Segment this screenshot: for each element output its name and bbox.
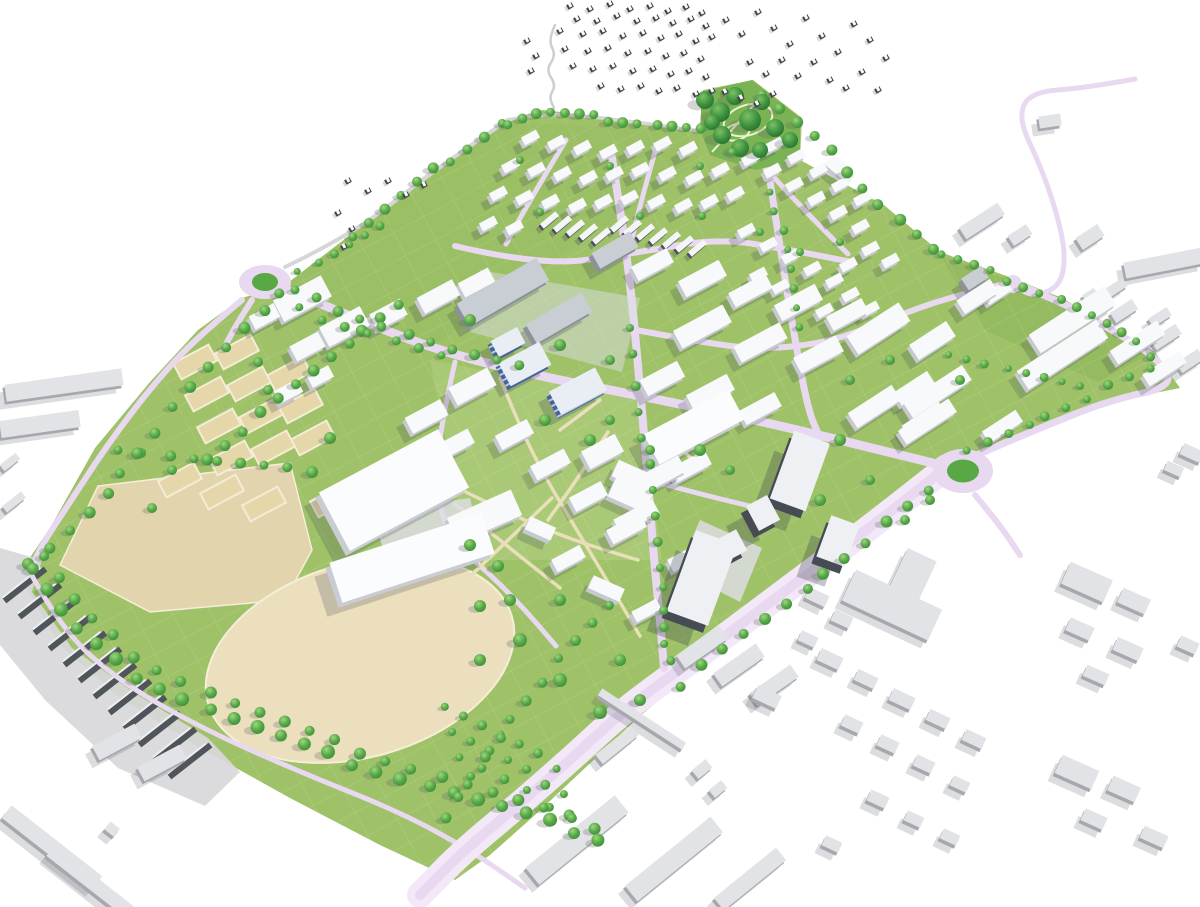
tree <box>1102 319 1111 328</box>
tree <box>414 343 424 353</box>
tree <box>54 572 65 583</box>
tree <box>517 114 527 124</box>
tree <box>477 764 486 773</box>
road <box>1013 79 1135 294</box>
tree <box>553 673 567 687</box>
tree <box>554 654 563 663</box>
tree <box>305 726 315 736</box>
tree <box>175 692 189 706</box>
tree <box>453 792 463 802</box>
tree <box>90 637 103 650</box>
tree <box>817 568 829 580</box>
tree <box>376 322 386 332</box>
tree <box>515 739 524 748</box>
tree <box>426 337 435 346</box>
tree <box>219 440 230 451</box>
tree <box>251 720 265 734</box>
tree <box>955 375 965 385</box>
tree <box>40 583 53 596</box>
dirt-track <box>549 25 556 108</box>
tree <box>152 665 162 675</box>
tree <box>937 250 945 258</box>
tree <box>591 834 604 847</box>
tree <box>503 120 512 129</box>
tree <box>514 360 524 370</box>
tree <box>1004 429 1013 438</box>
tree <box>446 157 455 166</box>
tree <box>713 126 731 144</box>
tree <box>355 315 364 324</box>
tree <box>782 132 798 148</box>
tree <box>540 780 550 790</box>
tree <box>1059 378 1066 385</box>
tree <box>894 214 906 226</box>
tree <box>659 622 669 632</box>
tree <box>645 445 655 455</box>
tree <box>131 673 143 685</box>
tree <box>803 584 813 594</box>
tree <box>1083 395 1091 403</box>
tree <box>238 322 250 334</box>
tree <box>254 707 265 718</box>
tree <box>793 304 800 311</box>
tree <box>27 563 39 575</box>
tree <box>1040 411 1050 421</box>
tree <box>1026 421 1034 429</box>
tree <box>789 284 798 293</box>
tree <box>516 156 524 164</box>
tree <box>696 124 706 134</box>
tree <box>375 312 386 323</box>
tree <box>363 330 371 338</box>
tree <box>614 654 626 666</box>
tree <box>536 208 544 216</box>
tree <box>521 695 532 706</box>
tree <box>321 745 335 759</box>
tree <box>437 351 445 359</box>
tree <box>1002 277 1011 286</box>
tree <box>1147 365 1155 373</box>
tree <box>466 737 475 746</box>
tree <box>474 600 486 612</box>
tree <box>1018 282 1028 292</box>
tree <box>298 737 311 750</box>
tree <box>1005 365 1012 372</box>
tree <box>779 226 788 235</box>
tree <box>865 475 875 485</box>
tree <box>570 635 581 646</box>
tree <box>212 456 222 466</box>
tree <box>496 800 508 812</box>
tree <box>405 764 416 775</box>
tree <box>295 303 303 311</box>
tree <box>65 526 75 536</box>
tree <box>554 339 566 351</box>
tree <box>447 345 457 355</box>
tree <box>147 503 157 513</box>
tree <box>380 756 390 766</box>
tree <box>436 771 448 783</box>
tree <box>522 765 531 774</box>
tree <box>666 121 677 132</box>
tree <box>695 659 707 671</box>
tree <box>924 486 934 496</box>
tree <box>513 633 527 647</box>
tree <box>274 288 284 298</box>
tree <box>469 349 480 360</box>
tree <box>872 199 883 210</box>
tree <box>836 238 844 246</box>
tree <box>71 622 83 634</box>
tree <box>464 314 476 326</box>
tree <box>605 601 614 610</box>
tree <box>739 109 761 131</box>
tree <box>113 446 122 455</box>
tree <box>696 162 704 170</box>
tree <box>279 716 291 728</box>
tree <box>1076 382 1084 390</box>
tree <box>567 813 577 823</box>
tree <box>537 678 547 688</box>
tree <box>165 450 176 461</box>
tree <box>1146 352 1155 361</box>
tree <box>589 110 598 119</box>
tree <box>506 715 515 724</box>
tree <box>912 230 922 240</box>
tree <box>539 414 551 426</box>
tree <box>766 119 784 137</box>
tree <box>587 618 597 628</box>
tree <box>428 162 439 173</box>
tree <box>312 293 322 303</box>
tree <box>282 462 292 472</box>
tree <box>987 266 995 274</box>
tree <box>774 103 785 114</box>
tree <box>448 728 456 736</box>
tree <box>634 694 646 706</box>
tree <box>354 748 366 760</box>
tree <box>656 564 664 572</box>
tree <box>698 212 706 220</box>
tree <box>492 355 501 364</box>
tree <box>881 516 893 528</box>
tree <box>523 786 531 794</box>
tree <box>531 108 542 119</box>
tree <box>796 248 804 256</box>
tree <box>980 359 989 368</box>
tree <box>574 108 585 119</box>
tree <box>273 393 284 404</box>
tree <box>392 336 401 345</box>
tree <box>593 705 607 719</box>
tree <box>1072 302 1082 312</box>
tree <box>739 629 749 639</box>
tree <box>463 780 473 790</box>
tree <box>512 794 524 806</box>
tree <box>205 687 217 699</box>
tree <box>364 218 374 228</box>
tree <box>221 342 231 352</box>
tree <box>631 381 641 391</box>
tree <box>462 144 472 154</box>
tree <box>254 406 266 418</box>
tree <box>471 792 485 806</box>
tree <box>845 375 855 385</box>
tree <box>839 553 850 564</box>
tree <box>660 640 668 648</box>
tree <box>291 285 300 294</box>
tree <box>487 787 498 798</box>
tree <box>149 428 160 439</box>
tree <box>649 486 657 494</box>
tree <box>520 806 533 819</box>
tree <box>841 166 853 178</box>
tree <box>784 246 791 253</box>
tree <box>1125 372 1134 381</box>
tree <box>1132 337 1140 345</box>
tree <box>318 316 327 325</box>
tree <box>253 357 263 367</box>
tree <box>168 402 178 412</box>
tree <box>259 461 268 470</box>
tree <box>925 495 935 505</box>
tree <box>128 651 140 663</box>
tree <box>533 748 543 758</box>
tree <box>560 790 568 798</box>
tree <box>900 515 910 525</box>
tree <box>791 116 803 128</box>
tree <box>153 682 166 695</box>
tree <box>235 458 246 469</box>
tree <box>464 539 476 551</box>
tree <box>340 322 350 332</box>
tree <box>834 434 846 446</box>
tree <box>560 108 570 118</box>
tree <box>902 501 913 512</box>
tree <box>175 676 186 687</box>
tree <box>184 381 196 393</box>
tree <box>306 466 318 478</box>
tree <box>717 643 728 654</box>
tree <box>324 432 336 444</box>
tree <box>393 772 407 786</box>
tree <box>928 244 939 255</box>
tree <box>953 255 962 264</box>
tree <box>361 231 369 239</box>
tree <box>728 148 736 156</box>
tree <box>441 812 452 823</box>
tree <box>756 228 764 236</box>
tree <box>54 603 68 617</box>
tree <box>230 698 240 708</box>
tree <box>480 751 491 762</box>
tree <box>659 606 668 615</box>
tree <box>814 494 826 506</box>
tree <box>504 756 512 764</box>
tree <box>238 427 248 437</box>
tree <box>860 538 870 548</box>
tree <box>109 652 123 666</box>
tree <box>589 823 601 835</box>
tree <box>294 268 301 275</box>
tree <box>653 120 663 130</box>
tree <box>329 734 340 745</box>
tree <box>752 142 768 158</box>
tree <box>963 447 971 455</box>
tree <box>1061 403 1070 412</box>
tree <box>167 465 177 475</box>
tree <box>1103 380 1113 390</box>
tree <box>1035 289 1043 297</box>
tree <box>131 447 143 459</box>
tree <box>345 339 355 349</box>
masterplan-canvas <box>0 0 1200 907</box>
tree <box>682 123 691 132</box>
tree <box>394 300 404 310</box>
tree <box>826 144 837 155</box>
tree <box>326 351 337 362</box>
tree <box>441 703 449 711</box>
tree <box>653 537 663 547</box>
tree <box>759 613 771 625</box>
tree <box>228 712 241 725</box>
tree <box>492 560 504 572</box>
tree <box>795 323 803 331</box>
tree <box>636 212 644 220</box>
tree <box>103 488 114 499</box>
tree <box>315 259 323 267</box>
tree <box>857 184 867 194</box>
tree <box>603 117 613 127</box>
tree <box>69 593 81 605</box>
tree <box>459 712 468 721</box>
tree <box>659 583 667 591</box>
tree <box>605 415 615 425</box>
tree <box>969 260 979 270</box>
tree <box>205 703 217 715</box>
dirt-track <box>549 25 556 108</box>
tree <box>275 729 287 741</box>
tree <box>637 433 646 442</box>
tree <box>346 759 358 771</box>
tree <box>479 132 490 143</box>
tree <box>333 306 344 317</box>
tree <box>962 355 970 363</box>
tree <box>651 511 660 520</box>
tree <box>568 827 580 839</box>
tree <box>885 355 895 365</box>
tree <box>499 774 509 784</box>
tree <box>645 459 655 469</box>
road <box>975 495 1020 555</box>
tree <box>770 207 778 215</box>
tree <box>1088 311 1096 319</box>
tree <box>543 813 557 827</box>
tree <box>84 506 96 518</box>
tree <box>87 613 97 623</box>
tree <box>1057 295 1066 304</box>
tree <box>376 221 385 230</box>
tree <box>379 204 390 215</box>
tree <box>39 551 49 561</box>
tree <box>766 189 773 196</box>
masterplan-rendering <box>0 0 1200 907</box>
tree <box>781 598 792 609</box>
tree <box>632 119 641 128</box>
tree <box>628 349 637 358</box>
tree <box>694 444 706 456</box>
tree <box>626 324 634 332</box>
tree <box>263 385 273 395</box>
tree <box>504 594 516 606</box>
tree <box>404 329 415 340</box>
tree <box>605 355 615 365</box>
tree <box>606 162 614 170</box>
tree <box>725 465 735 475</box>
tree <box>369 766 382 779</box>
tree <box>474 654 486 666</box>
tree <box>477 720 487 730</box>
tree <box>787 265 795 273</box>
tree <box>539 803 549 813</box>
tree <box>1117 327 1127 337</box>
tree <box>983 437 993 447</box>
tree <box>330 249 339 258</box>
tree <box>1040 373 1049 382</box>
tree <box>810 131 820 141</box>
tree <box>115 468 125 478</box>
tree <box>635 408 643 416</box>
tree <box>617 117 628 128</box>
tree <box>424 780 436 792</box>
tree <box>108 629 119 640</box>
tree <box>1022 369 1030 377</box>
tree <box>203 362 214 373</box>
tree <box>676 682 686 692</box>
tree <box>466 772 475 781</box>
tree <box>945 351 952 358</box>
tree <box>259 305 270 316</box>
tree <box>553 765 561 773</box>
tree <box>308 364 320 376</box>
tree <box>554 594 566 606</box>
tree <box>291 379 301 389</box>
tree <box>584 434 596 446</box>
tree <box>666 656 675 665</box>
tree <box>455 753 463 761</box>
tree <box>496 733 506 743</box>
